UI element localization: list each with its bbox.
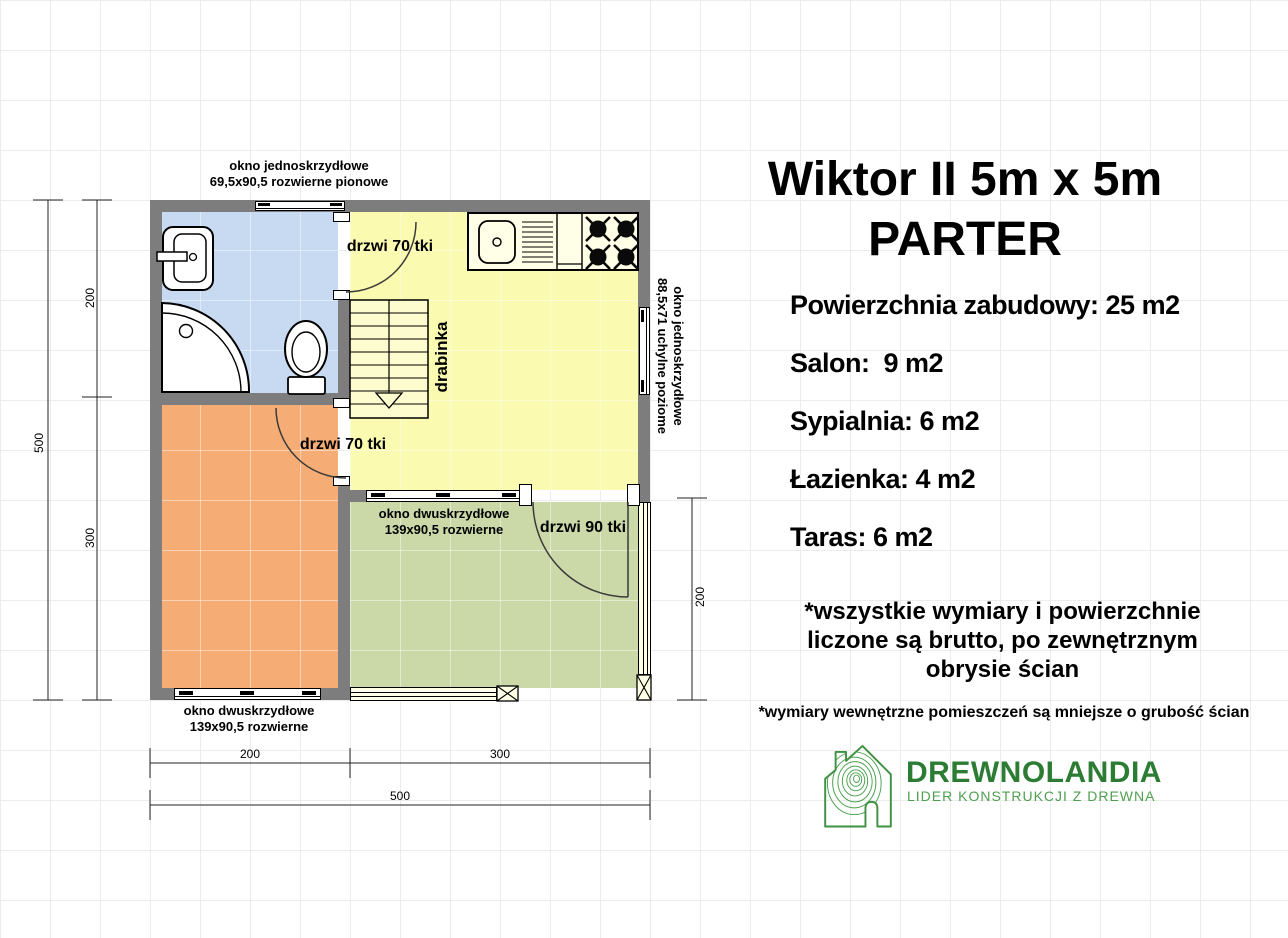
window-bathroom-top — [255, 201, 345, 211]
label-door-bedroom: drzwi 70 tki — [263, 436, 423, 454]
wall-top — [150, 200, 650, 212]
wall-bedroom-bottom-seg2 — [321, 688, 350, 700]
window-sill-line — [256, 208, 344, 209]
label-window-top: okno jednoskrzydłowe 69,5x90,5 rozwierne… — [159, 158, 439, 190]
label-line: 139x90,5 rozwierne — [149, 719, 349, 735]
window-frame-mark — [258, 203, 270, 206]
window-sill-line — [646, 308, 647, 394]
note-small: *wymiary wewnętrzne pomieszczeń są mniej… — [718, 704, 1288, 722]
label-line: 88,5x71 uchylne poziome — [654, 266, 670, 446]
wall-terrace-seg1 — [338, 490, 366, 502]
note-bold-line1: *wszystkie wymiary i powierzchnie — [740, 598, 1265, 626]
label-line: okno jednoskrzydłowe — [670, 266, 686, 446]
label-window-bedroom: okno dwuskrzydłowe 139x90,5 rozwierne — [149, 703, 349, 735]
wall-bath-bedroom — [150, 393, 350, 405]
window-sill-line — [175, 696, 320, 697]
dim-overall-width: 500 — [360, 789, 440, 803]
note-bold-line3: obrysie ścian — [740, 656, 1265, 684]
window-frame-mark — [502, 493, 516, 497]
dim-bottom-left: 200 — [210, 747, 290, 761]
window-bedroom-bottom — [174, 688, 321, 700]
terrace-railing-bottom — [350, 687, 497, 701]
window-frame-mark — [240, 691, 254, 695]
drewnolandia-house-logo-icon — [820, 740, 896, 828]
label-door-bathroom: drzwi 70 tki — [310, 238, 470, 256]
dim-bottom-right: 300 — [460, 747, 540, 761]
page-title-line2: PARTER — [700, 212, 1230, 267]
door-jamb — [333, 398, 350, 408]
label-line: okno dwuskrzydłowe — [149, 703, 349, 719]
door-jamb — [627, 484, 640, 506]
window-frame-mark — [179, 691, 193, 695]
door-jamb — [333, 476, 350, 486]
label-line: 69,5x90,5 rozwierne pionowe — [159, 174, 439, 190]
window-frame-mark — [641, 310, 644, 322]
label-line: okno jednoskrzydłowe — [159, 158, 439, 174]
label-door-terrace: drzwi 90 tki — [503, 519, 663, 537]
brand-name: DREWNOLANDIA — [906, 756, 1162, 790]
area-terrace: Taras: 6 m2 — [790, 522, 933, 553]
note-bold-line2: liczone są brutto, po zewnętrznym — [740, 627, 1265, 655]
door-jamb — [333, 290, 350, 300]
brand-tagline: LIDER KONSTRUKCJI Z DREWNA — [907, 788, 1155, 804]
wall-bedroom-bottom-seg1 — [150, 688, 174, 700]
area-bathroom: Łazienka: 4 m2 — [790, 464, 975, 495]
dim-left-upper: 200 — [83, 278, 97, 318]
window-frame-mark — [330, 203, 342, 206]
page-title-line1: Wiktor II 5m x 5m — [700, 152, 1230, 207]
window-frame-mark — [302, 691, 316, 695]
floor-plan-sheet: okno jednoskrzydłowe 69,5x90,5 rozwierne… — [0, 0, 1288, 938]
window-salon-terrace — [366, 490, 521, 502]
dim-right-terrace: 200 — [693, 577, 707, 617]
label-window-right: okno jednoskrzydłowe 88,5x71 uchylne poz… — [654, 266, 686, 446]
window-frame-mark — [436, 493, 450, 497]
area-total: Powierzchnia zabudowy: 25 m2 — [790, 290, 1180, 321]
label-ladder: drabinka — [432, 297, 452, 417]
area-bedroom: Sypialnia: 6 m2 — [790, 406, 979, 437]
dim-overall-height: 500 — [32, 423, 46, 463]
window-frame-mark — [371, 493, 385, 497]
door-jamb — [333, 212, 350, 222]
dim-left-lower: 300 — [83, 518, 97, 558]
area-salon: Salon: 9 m2 — [790, 348, 943, 379]
wall-vertical-seg2 — [338, 290, 350, 400]
wall-left — [150, 200, 162, 700]
door-jamb — [519, 484, 532, 506]
window-sill-line — [367, 498, 520, 499]
window-frame-mark — [641, 380, 644, 392]
window-salon-right — [639, 307, 650, 395]
